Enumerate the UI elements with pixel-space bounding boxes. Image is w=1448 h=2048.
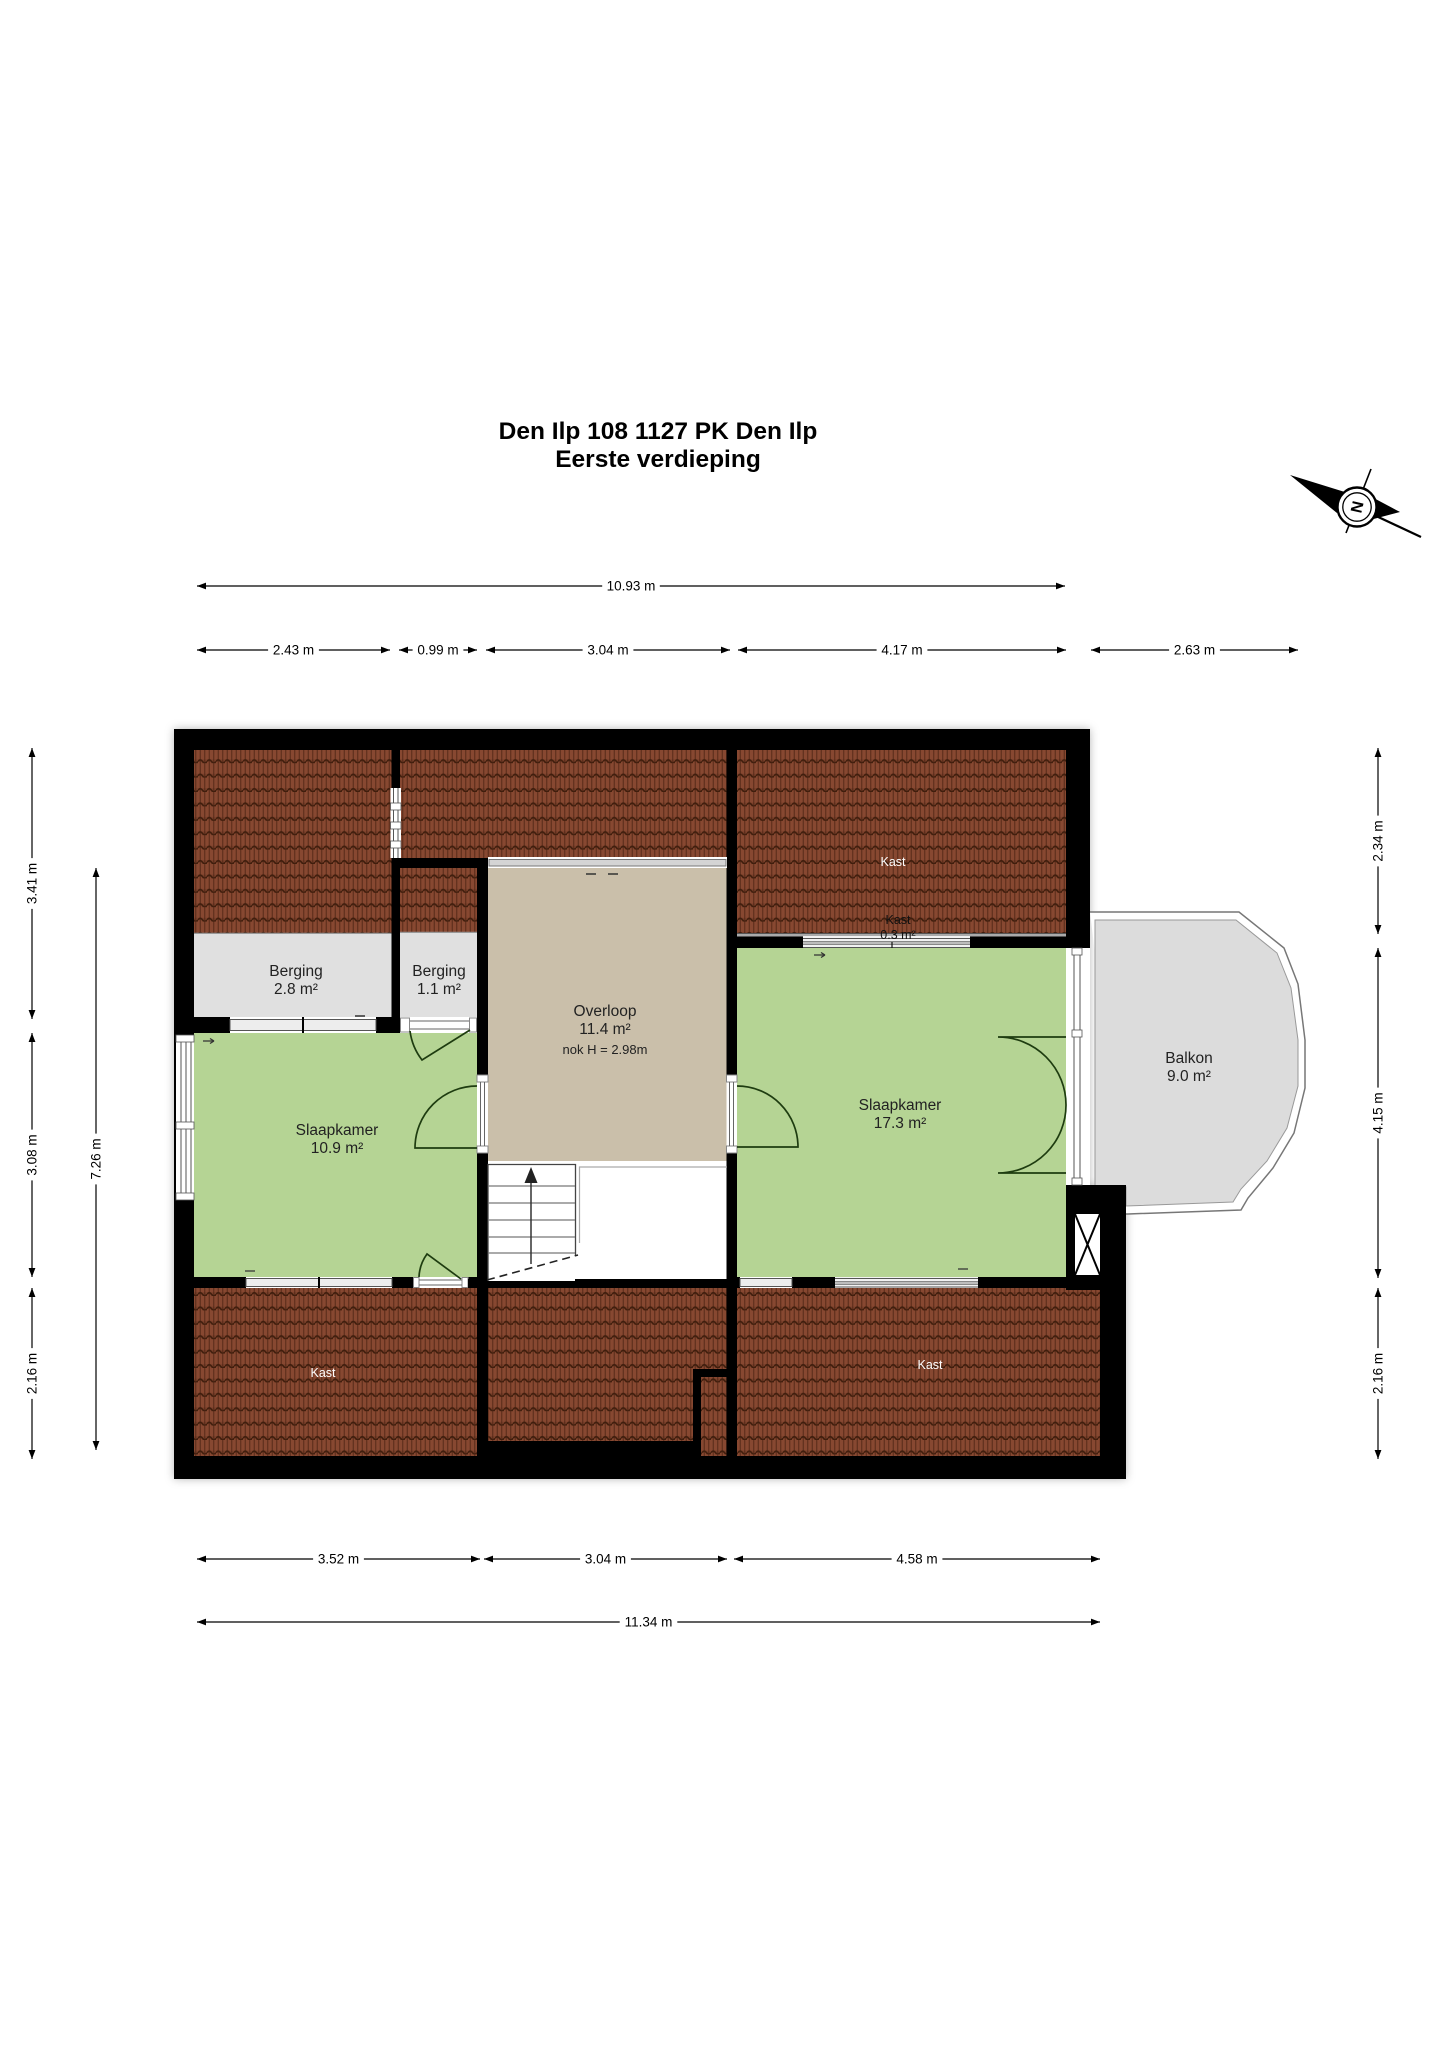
svg-text:0.3 m²: 0.3 m² xyxy=(880,928,915,942)
svg-text:17.3 m²: 17.3 m² xyxy=(874,1115,927,1132)
svg-text:2.16 m: 2.16 m xyxy=(1371,1353,1386,1394)
svg-text:Kast: Kast xyxy=(917,1358,943,1372)
svg-text:4.17 m: 4.17 m xyxy=(881,643,922,658)
svg-text:Overloop: Overloop xyxy=(574,1003,637,1020)
svg-text:2.34 m: 2.34 m xyxy=(1371,820,1386,861)
svg-text:11.34 m: 11.34 m xyxy=(625,1615,673,1630)
svg-text:9.0 m²: 9.0 m² xyxy=(1167,1068,1211,1085)
svg-text:4.58 m: 4.58 m xyxy=(896,1552,937,1567)
svg-text:Kast: Kast xyxy=(880,855,906,869)
svg-text:nok H = 2.98m: nok H = 2.98m xyxy=(563,1042,648,1057)
svg-text:10.9 m²: 10.9 m² xyxy=(311,1140,364,1157)
svg-text:Berging: Berging xyxy=(412,963,465,980)
svg-text:1.1 m²: 1.1 m² xyxy=(417,981,461,998)
svg-text:2.8 m²: 2.8 m² xyxy=(274,981,318,998)
svg-text:Balkon: Balkon xyxy=(1165,1050,1212,1067)
svg-text:2.63 m: 2.63 m xyxy=(1174,643,1215,658)
svg-text:3.08 m: 3.08 m xyxy=(25,1134,40,1175)
svg-text:3.04 m: 3.04 m xyxy=(587,643,628,658)
svg-text:3.52 m: 3.52 m xyxy=(318,1552,359,1567)
svg-text:Eerste verdieping: Eerste verdieping xyxy=(555,446,761,473)
svg-text:10.93 m: 10.93 m xyxy=(607,579,656,594)
svg-text:7.26 m: 7.26 m xyxy=(89,1138,104,1179)
svg-text:Kast: Kast xyxy=(310,1366,336,1380)
svg-text:3.41 m: 3.41 m xyxy=(25,863,40,904)
svg-text:4.15 m: 4.15 m xyxy=(1371,1092,1386,1133)
svg-text:11.4 m²: 11.4 m² xyxy=(579,1021,630,1038)
svg-text:0.99 m: 0.99 m xyxy=(417,643,458,658)
svg-text:2.43 m: 2.43 m xyxy=(273,643,314,658)
svg-text:Slaapkamer: Slaapkamer xyxy=(296,1122,379,1139)
svg-text:Slaapkamer: Slaapkamer xyxy=(859,1097,942,1114)
svg-text:Den Ilp 108 1127 PK Den Ilp: Den Ilp 108 1127 PK Den Ilp xyxy=(499,418,818,445)
svg-text:Kast: Kast xyxy=(885,913,911,927)
svg-text:Berging: Berging xyxy=(269,963,322,980)
svg-text:2.16 m: 2.16 m xyxy=(25,1353,40,1394)
svg-text:3.04 m: 3.04 m xyxy=(585,1552,626,1567)
